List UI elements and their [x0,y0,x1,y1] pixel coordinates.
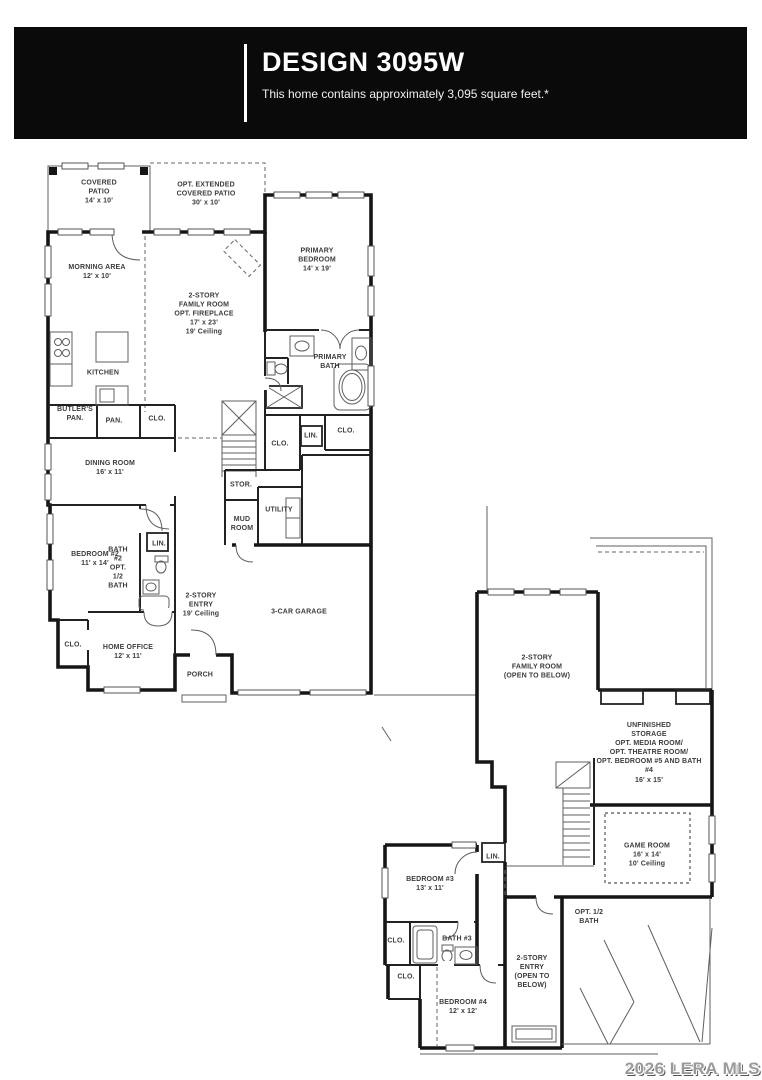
first-floor-plan [45,163,374,702]
mls-watermark: 2026 LERA MLS [625,1059,760,1079]
second-floor-plan [374,506,715,1054]
floorplan-drawing [0,0,762,1080]
floorplan-sheet: DESIGN 3095W This home contains approxim… [0,0,762,1080]
